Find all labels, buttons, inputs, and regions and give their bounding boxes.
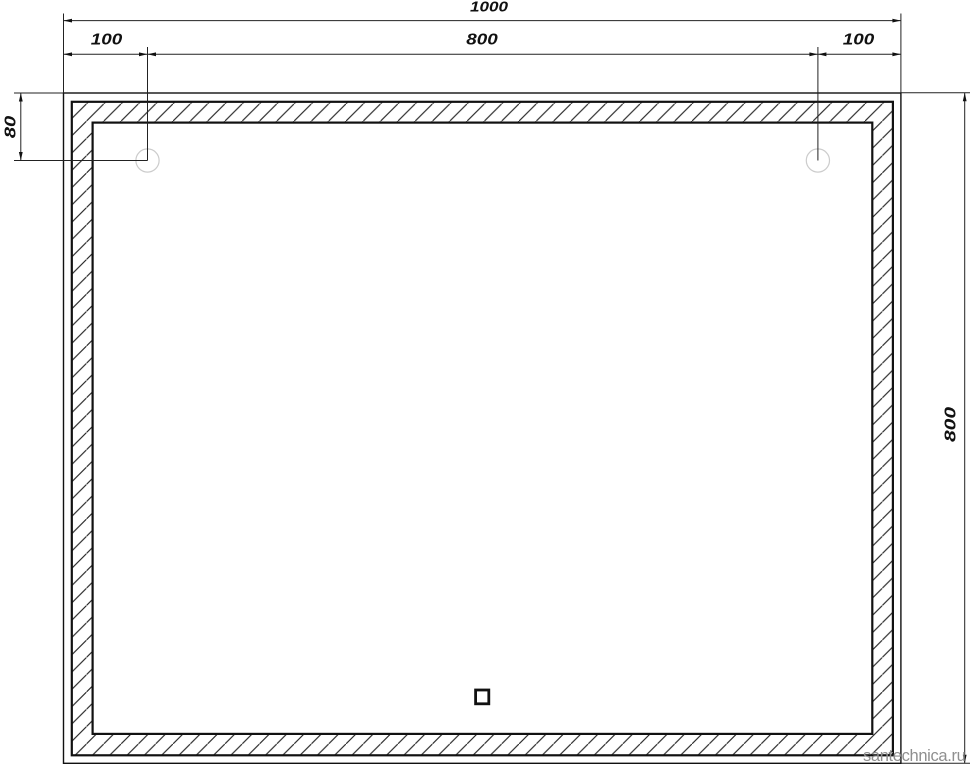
svg-text:santechnica.ru: santechnica.ru xyxy=(863,747,966,765)
svg-text:800: 800 xyxy=(943,407,960,442)
svg-text:100: 100 xyxy=(843,32,875,49)
svg-text:80: 80 xyxy=(3,115,20,138)
svg-text:1000: 1000 xyxy=(470,0,509,16)
svg-text:100: 100 xyxy=(91,32,123,49)
svg-text:800: 800 xyxy=(466,32,498,49)
